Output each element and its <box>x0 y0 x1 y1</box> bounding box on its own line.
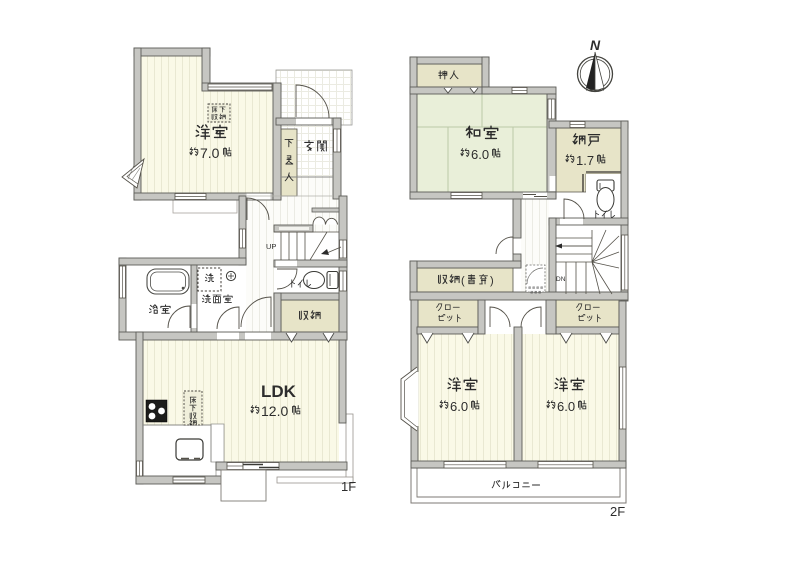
svg-text:LDK: LDK <box>261 382 297 401</box>
svg-text:DN: DN <box>556 276 566 283</box>
svg-text:6.0: 6.0 <box>471 147 489 162</box>
svg-text:1.7: 1.7 <box>576 153 594 168</box>
svg-text:N: N <box>590 37 601 53</box>
svg-text:(: ( <box>461 275 465 287</box>
svg-text:7.0: 7.0 <box>200 145 220 161</box>
svg-text:UP: UP <box>266 242 276 251</box>
svg-text:12.0: 12.0 <box>261 403 288 419</box>
svg-text:1F: 1F <box>341 479 356 494</box>
svg-text:2F: 2F <box>610 504 625 519</box>
svg-text:6.0: 6.0 <box>450 399 468 414</box>
svg-text:6.0: 6.0 <box>557 399 575 414</box>
svg-text:): ) <box>490 275 494 287</box>
